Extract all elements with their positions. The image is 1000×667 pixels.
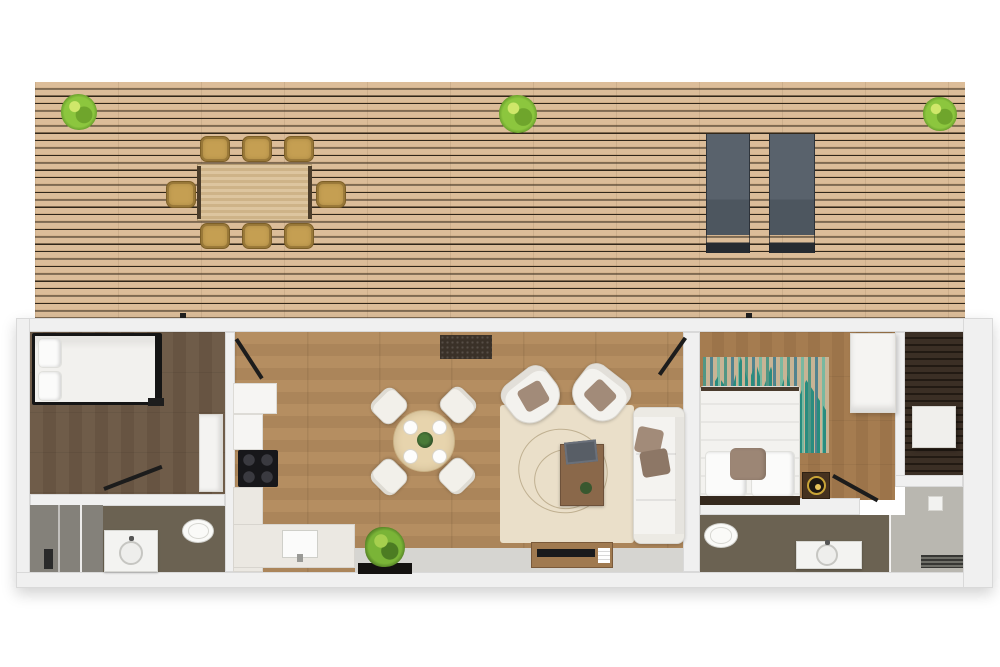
shower-glass [889, 515, 891, 572]
kitchen-cabinet [233, 414, 263, 450]
cooktop [238, 450, 278, 487]
faucet [825, 540, 830, 545]
pillow [38, 338, 62, 368]
kitchen-faucet [297, 554, 303, 562]
headboard [700, 496, 800, 505]
shower-tray-item [928, 496, 943, 511]
throw-pillow [583, 378, 618, 413]
terrace-side-table [912, 406, 956, 448]
shower-head [44, 549, 53, 569]
shrub-plant [61, 94, 97, 130]
bed-bench [148, 398, 164, 406]
wardrobe-1 [199, 414, 223, 492]
place-setting [432, 449, 447, 464]
throw-pillow [516, 379, 551, 413]
place-setting [403, 420, 418, 435]
place-setting [403, 449, 418, 464]
outdoor-chair [284, 136, 314, 162]
shrub-plant [499, 95, 537, 133]
sun-lounger [769, 134, 815, 253]
shower-drain [921, 555, 963, 568]
toilet-2 [704, 523, 738, 548]
exterior-wall-left [16, 318, 30, 588]
shower-glass [58, 505, 60, 572]
outdoor-chair [200, 136, 230, 162]
outdoor-chair [200, 223, 230, 249]
interior-wall [895, 475, 963, 487]
toilet-1 [182, 519, 214, 543]
accent-pillow [730, 448, 766, 480]
side-terrace-decking [905, 332, 963, 475]
exterior-wall-right [963, 318, 993, 588]
outdoor-chair [316, 181, 346, 208]
outdoor-chair [242, 136, 272, 162]
potted-plant [365, 527, 405, 567]
laptop [564, 439, 598, 464]
sofa-cushion-seam [636, 499, 676, 501]
exterior-wall-bottom [16, 572, 993, 588]
place-setting [432, 420, 447, 435]
throw-pillow [639, 448, 671, 478]
tv [537, 549, 595, 557]
table-centerpiece-plant [417, 432, 433, 448]
outdoor-dining-table [197, 164, 312, 221]
interior-wall [895, 332, 905, 487]
washbasin [816, 544, 838, 566]
doormat [440, 335, 492, 359]
shower-1 [30, 505, 103, 572]
shrub-plant [923, 97, 957, 131]
wardrobe-2 [850, 333, 896, 413]
book-stack [598, 548, 610, 563]
exterior-wall-top [16, 318, 993, 332]
sun-lounger [706, 134, 750, 253]
outdoor-chair [284, 223, 314, 249]
small-plant [580, 482, 592, 494]
outdoor-chair [166, 181, 196, 208]
washbasin [119, 541, 143, 565]
pillow [38, 371, 62, 401]
outdoor-chair [242, 223, 272, 249]
table-lamp [807, 476, 826, 495]
faucet [129, 536, 134, 541]
kitchen-tall-cabinet [233, 383, 277, 414]
floor-plan-render [0, 0, 1000, 667]
shower-glass [80, 505, 82, 572]
interior-wall [683, 332, 700, 572]
